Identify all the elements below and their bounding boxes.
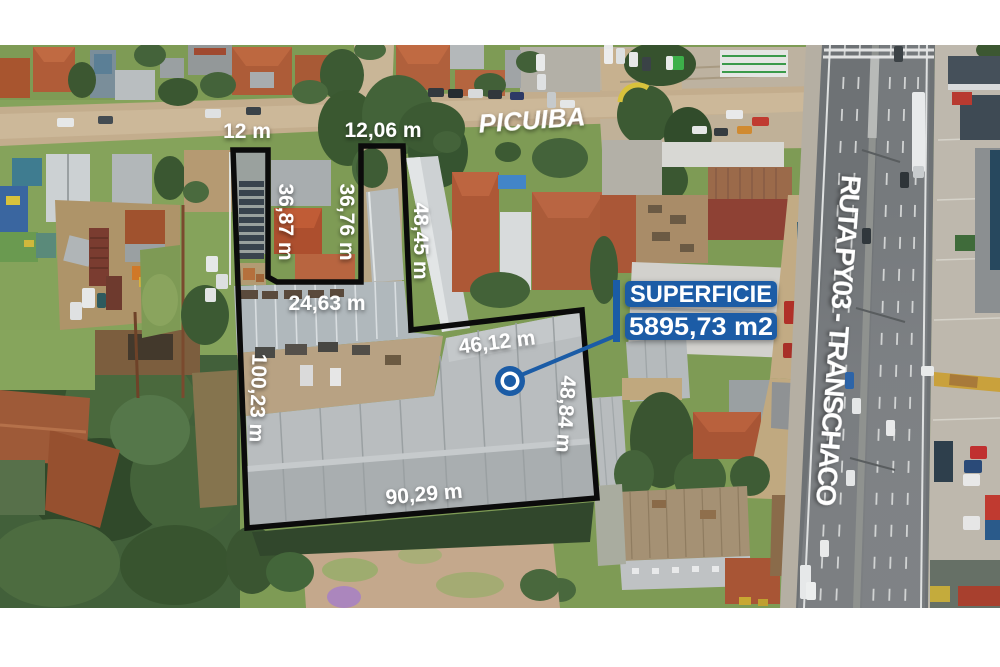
svg-text:12 m: 12 m [223,120,271,143]
svg-text:5895,73 m2: 5895,73 m2 [629,313,773,341]
svg-text:SUPERFICIE: SUPERFICIE [630,281,772,308]
svg-text:100,23 m: 100,23 m [244,353,270,442]
svg-text:48,45 m: 48,45 m [409,202,432,279]
svg-text:36,76 m: 36,76 m [335,183,358,260]
svg-text:36,87 m: 36,87 m [274,183,297,260]
svg-text:12,06 m: 12,06 m [344,119,421,142]
svg-text:24,63 m: 24,63 m [288,292,365,315]
